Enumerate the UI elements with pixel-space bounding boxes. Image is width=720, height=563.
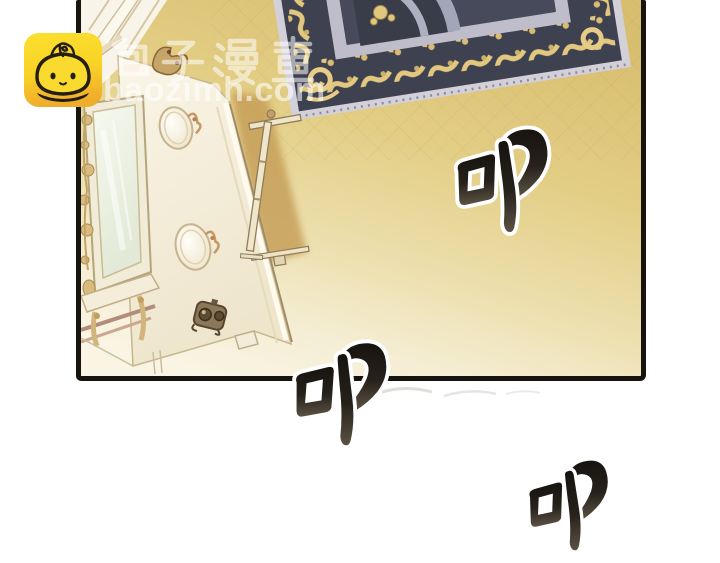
sfx-knock-1: 叩 (440, 120, 565, 238)
sfx-knock-3-text: 叩 (520, 555, 521, 556)
sfx-knock-2-text: 叩 (285, 449, 286, 450)
watermark-domain-text: baozimh.com (103, 71, 326, 110)
comic-page[interactable]: 叩 叩 叩 (0, 0, 720, 563)
watermark-site-name-text: 包子漫畫 (0, 0, 1, 1)
baozi-logo-icon (23, 32, 103, 108)
sfx-knock-2: 叩 (281, 335, 401, 449)
sfx-knock-3: 叩 (514, 452, 624, 555)
cjk-char-bao (114, 40, 147, 74)
faint-brush-marks (378, 382, 548, 402)
